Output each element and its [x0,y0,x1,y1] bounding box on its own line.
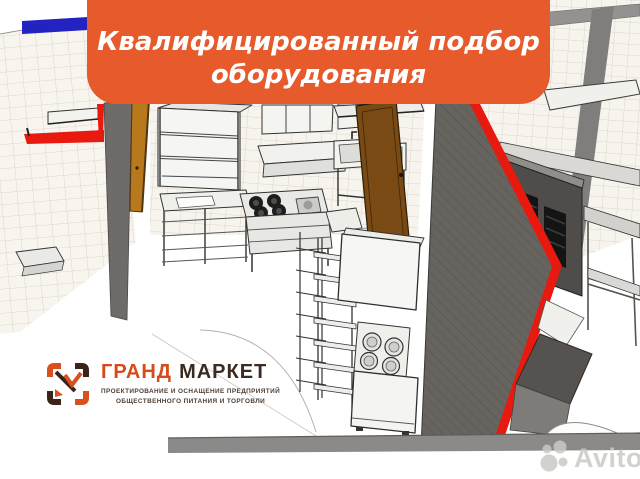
range-front [246,212,332,254]
tagline-line1: ПРОЕКТИРОВАНИЕ И ОСНАЩЕНИЕ ПРЕДПРИЯТИЙ [101,387,280,397]
promo-banner: Квалифицированный подбор оборудования [87,0,550,104]
foreground-equipment [296,228,424,435]
brand-word-1: ГРАНД [101,361,172,383]
tagline-line2: ОБЩЕСТВЕННОГО ПИТАНИЯ И ТОРГОВЛИ [101,397,280,407]
promo-title-line1: Квалифицированный подбор [87,26,550,59]
avito-watermark: Avito [536,440,640,476]
brand-word-2: МАРКЕТ [179,361,267,383]
door-handle [135,166,138,169]
ad-image: Квалифицированный подбор оборудования ГР… [0,0,640,479]
upper-cabinets [262,105,333,134]
brand-name: ГРАНДМАРКЕТ [101,361,280,384]
avito-circles-icon [536,440,574,476]
promo-title-line2: оборудования [87,59,550,92]
logo-text: ГРАНДМАРКЕТ ПРОЕКТИРОВАНИЕ И ОСНАЩЕНИЕ П… [101,361,280,408]
brand-tagline: ПРОЕКТИРОВАНИЕ И ОСНАЩЕНИЕ ПРЕДПРИЯТИЙ О… [101,387,280,408]
door-handle [399,173,403,177]
kettle-unit [338,228,424,435]
avito-watermark-text: Avito [574,443,640,474]
counter-extension [326,208,362,232]
promo-banner-text: Квалифицированный подбор оборудования [87,26,550,104]
logo-mark-icon [44,360,92,408]
company-logo: ГРАНДМАРКЕТ ПРОЕКТИРОВАНИЕ И ОСНАЩЕНИЕ П… [44,360,280,408]
